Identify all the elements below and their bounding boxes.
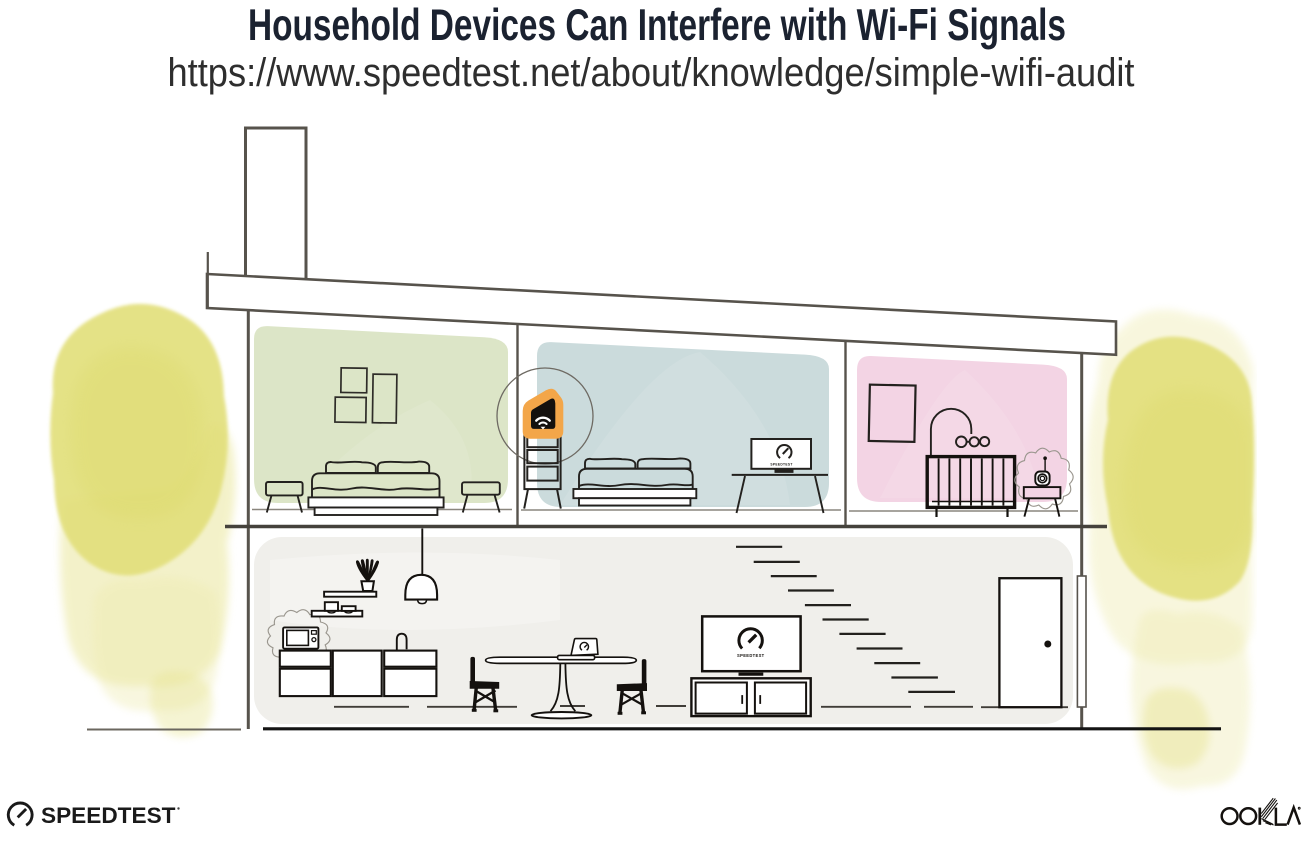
svg-text:SPEEDTEST: SPEEDTEST	[41, 803, 176, 828]
svg-text:SPEEDTEST: SPEEDTEST	[737, 653, 765, 658]
svg-text:https://www.speedtest.net/abou: https://www.speedtest.net/about/knowledg…	[168, 51, 1135, 95]
svg-text:Household Devices Can Interfer: Household Devices Can Interfere with Wi-…	[248, 1, 1066, 50]
svg-text:SPEEDTEST: SPEEDTEST	[770, 462, 792, 466]
